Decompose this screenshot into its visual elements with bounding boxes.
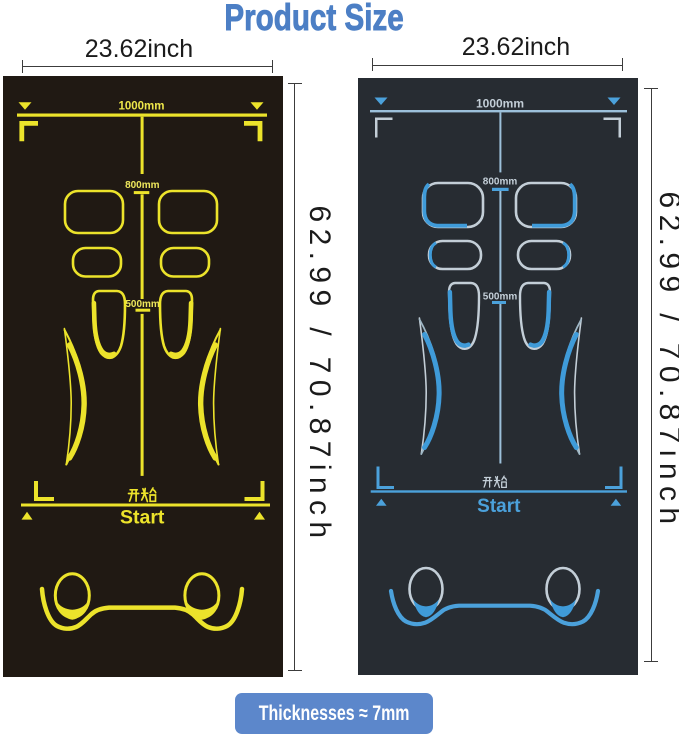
- svg-text:Start: Start: [477, 496, 521, 517]
- svg-text:500mm: 500mm: [125, 299, 160, 310]
- svg-text:Start: Start: [120, 507, 165, 529]
- svg-text:1000mm: 1000mm: [476, 97, 524, 111]
- svg-text:800mm: 800mm: [483, 176, 518, 187]
- svg-text:800mm: 800mm: [125, 180, 160, 191]
- svg-text:500mm: 500mm: [483, 292, 518, 303]
- svg-text:1000mm: 1000mm: [118, 100, 164, 112]
